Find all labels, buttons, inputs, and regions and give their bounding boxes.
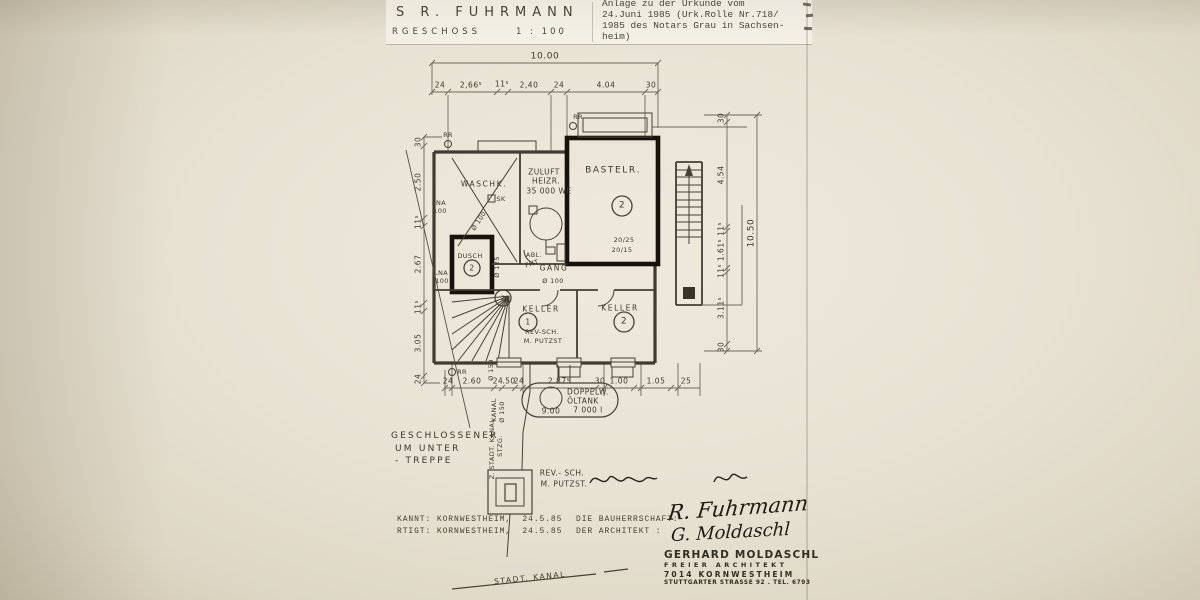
floor-plan-drawing xyxy=(0,0,1200,600)
plan-label: 10.00 xyxy=(531,53,560,62)
plan-label: 1.05 xyxy=(647,377,666,385)
plan-label: SK xyxy=(496,196,505,203)
stamp-address: STUTTGARTER STRASSE 92 . TEL. 6793 xyxy=(664,580,811,586)
plan-label: 11⁵ xyxy=(495,80,509,88)
plan-label: 4.04 xyxy=(597,81,616,89)
plan-label: 24 xyxy=(435,81,446,89)
plan-label: 30 xyxy=(717,113,725,124)
plan-label: 2.87⁵ xyxy=(548,377,570,385)
plan-label: 24 xyxy=(443,377,454,385)
plan-label: 24 xyxy=(554,81,565,89)
plan-label: 11⁵ xyxy=(414,215,422,229)
plan-label: 25 xyxy=(681,377,692,385)
prepared-row-left: RTIGT: KORNWESTHEIM, 24.5.85 xyxy=(397,527,562,536)
plan-label: 100 xyxy=(433,208,447,215)
plan-label: 2.50 xyxy=(414,173,422,192)
plan-label: 2 xyxy=(469,264,474,272)
plan-label: Z. STADT. KANAL xyxy=(489,419,496,480)
plan-label: 7 000 l xyxy=(573,406,602,414)
plan-label: M. PUTZST xyxy=(524,338,563,345)
plan-label: 2 xyxy=(621,318,627,327)
approval-row-right: DIE BAUHERRSCHAFT: xyxy=(576,515,679,524)
plan-label: 2.67 xyxy=(414,255,422,274)
plan-label: RR xyxy=(443,132,453,139)
plan-label: LNA xyxy=(434,270,448,277)
plan-label: HEIZR. xyxy=(532,177,560,185)
plan-label: REV-SCH. xyxy=(525,329,559,336)
terrain-lines xyxy=(652,127,747,305)
handwritten-initials xyxy=(590,474,747,483)
plan-label: 30 xyxy=(595,377,606,385)
exhaust-duct xyxy=(557,244,565,261)
plan-label: LNA xyxy=(432,200,446,207)
stamp-architect-title: FREIER ARCHITEKT xyxy=(664,561,787,569)
plan-label: ÖLTANK xyxy=(567,397,599,405)
plan-label: 3.05 xyxy=(414,334,422,353)
plan-label: 2 xyxy=(501,295,506,302)
plan-label: UM UNTER xyxy=(395,445,461,454)
boiler-pump xyxy=(529,206,537,214)
washroom-drain-lines xyxy=(452,158,517,262)
plan-label: 30 xyxy=(414,137,422,148)
plan-label: REV.- SCH. xyxy=(540,469,584,477)
plan-label: 3.11⁵ xyxy=(717,297,725,319)
plan-label: Ø 100 xyxy=(542,278,564,285)
plan-label: RR xyxy=(573,114,583,121)
prepared-row-right: DER ARCHITEKT : xyxy=(576,527,662,536)
plan-label: ZULUFT xyxy=(528,168,560,176)
plan-label: 100 xyxy=(435,278,449,285)
drain-diagonal xyxy=(406,150,470,428)
plan-label: 2,40 xyxy=(520,81,539,89)
plan-label: 2 xyxy=(619,202,625,211)
plan-label: 30 xyxy=(717,342,725,353)
plan-label: 24 xyxy=(414,374,422,385)
plan-label: BASTELR. xyxy=(585,167,641,176)
plan-label: Ø 150 xyxy=(488,359,495,381)
plan-label: 24 xyxy=(514,377,525,385)
plan-label: 11⁵ xyxy=(414,300,422,314)
boiler-symbol xyxy=(530,208,562,240)
stair-hatch-block xyxy=(683,287,695,299)
light-shaft xyxy=(478,141,536,152)
plan-label: 1.61⁵ xyxy=(717,239,725,261)
plan-label: 4.54 xyxy=(717,166,725,185)
light-shaft xyxy=(578,113,652,137)
plan-label: M. PUTZST. xyxy=(541,480,588,488)
plan-label: 30 xyxy=(646,81,657,89)
plan-label: 9.00 xyxy=(542,407,561,415)
plan-label: GANG xyxy=(540,264,569,272)
plan-label: KELLER xyxy=(522,305,560,313)
rain-pipe xyxy=(570,123,577,130)
plan-label: 1 xyxy=(525,318,530,326)
plan-label: GESCHLOSSENER xyxy=(391,432,499,441)
plan-label: 20/15 xyxy=(612,247,633,254)
plan-label: 11⁵ xyxy=(717,264,725,278)
exhaust-duct xyxy=(546,247,555,254)
plan-label: ABL. xyxy=(526,252,542,259)
plan-label: 2,66⁵ xyxy=(460,81,482,89)
approval-row-left: KANNT: KORNWESTHEIM, 24.5.85 xyxy=(397,515,562,524)
plan-label: KELLER xyxy=(601,304,639,312)
plan-label: - TREPPE xyxy=(395,457,453,466)
plan-label: WASCHK. xyxy=(461,180,507,188)
plan-label: DOPPELW. xyxy=(567,388,609,396)
plan-label: 35 000 WE xyxy=(526,187,571,195)
scanned-floor-plan-document: { "header": { "name": "S R. FUHRMANN", "… xyxy=(0,0,1200,600)
plan-label: Ø 125 xyxy=(494,256,501,278)
plan-label: 1.00 xyxy=(610,377,629,385)
plan-label: Ø 150 xyxy=(499,401,506,423)
plan-label: 11⁵ xyxy=(717,222,725,236)
plan-label: DUSCH xyxy=(457,253,482,260)
plan-label: RR xyxy=(457,369,467,376)
plan-label: 20/25 xyxy=(614,237,635,244)
plan-label: 2.60 xyxy=(463,377,482,385)
stamp-city: 7014 KORNWESTHEIM xyxy=(664,570,794,579)
plan-label: 10.50 xyxy=(748,219,757,248)
stamp-architect-name: GERHARD MOLDASCHL xyxy=(664,549,819,561)
